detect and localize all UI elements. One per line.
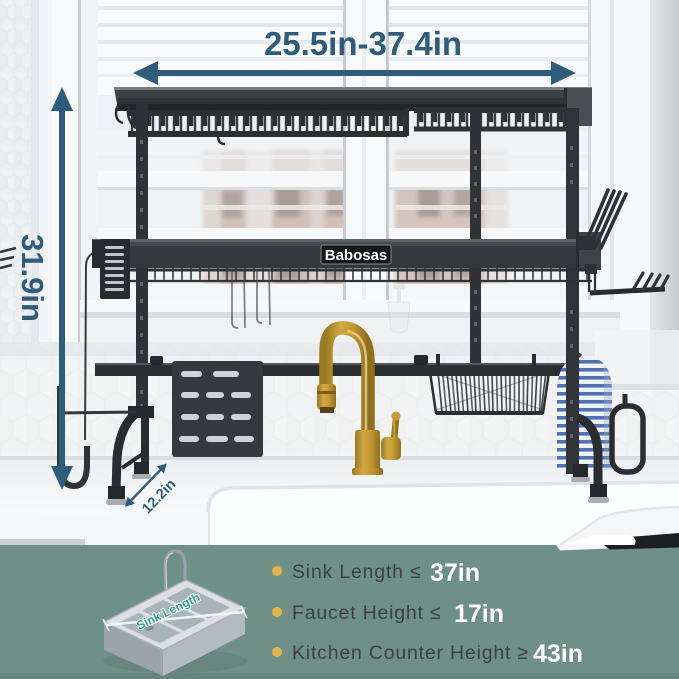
svg-text:Babosas: Babosas xyxy=(325,247,388,264)
svg-text:Faucet Height ≤: Faucet Height ≤ xyxy=(292,602,442,624)
svg-text:17in: 17in xyxy=(454,600,504,628)
svg-text:Kitchen Counter Height ≥: Kitchen Counter Height ≥ xyxy=(292,642,529,664)
svg-text:31.9in: 31.9in xyxy=(15,234,50,322)
svg-text:25.5in-37.4in: 25.5in-37.4in xyxy=(264,25,462,62)
svg-text:37in: 37in xyxy=(430,559,480,587)
svg-text:Sink Length ≤: Sink Length ≤ xyxy=(292,561,422,583)
svg-text:43in: 43in xyxy=(533,640,583,668)
